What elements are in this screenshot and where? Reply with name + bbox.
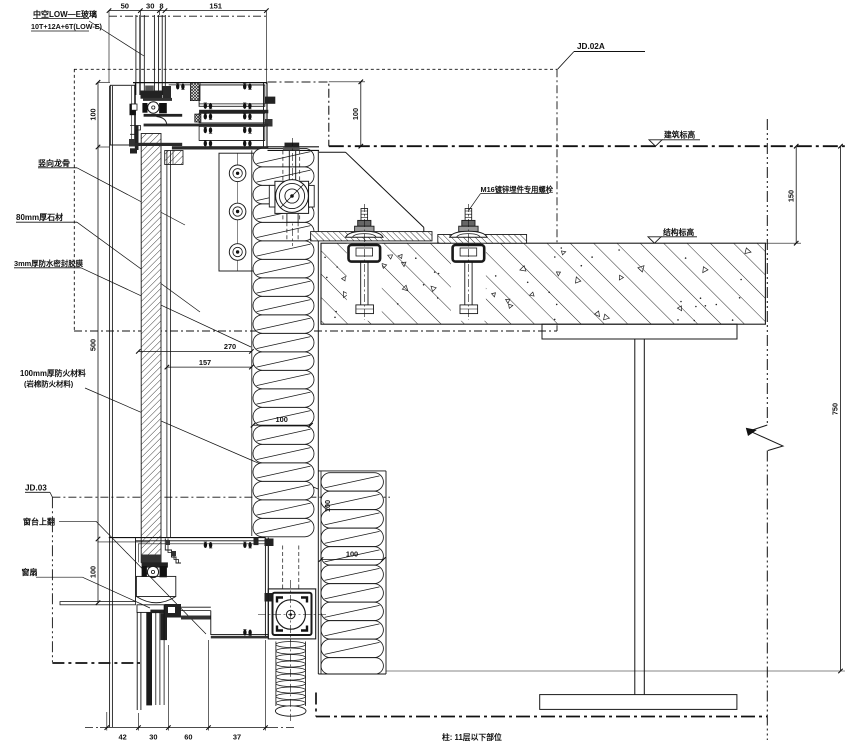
svg-text:500: 500	[89, 339, 98, 351]
svg-text:100: 100	[346, 550, 358, 559]
svg-text:JD.03: JD.03	[25, 483, 47, 492]
svg-text:竖向龙骨: 竖向龙骨	[38, 158, 70, 168]
svg-text:80mm厚石材: 80mm厚石材	[16, 212, 63, 222]
svg-text:30: 30	[149, 733, 157, 742]
svg-text:建筑标高: 建筑标高	[663, 130, 695, 140]
svg-text:50: 50	[121, 2, 129, 11]
svg-text:(岩棉防火材料): (岩棉防火材料)	[24, 379, 74, 388]
svg-text:100: 100	[276, 415, 288, 424]
svg-text:8: 8	[159, 2, 163, 11]
svg-text:100: 100	[351, 108, 360, 120]
svg-text:M16镀锌埋件专用螺栓: M16镀锌埋件专用螺栓	[481, 185, 554, 194]
svg-text:中空LOW—E玻璃: 中空LOW—E玻璃	[33, 9, 97, 19]
svg-text:100: 100	[323, 500, 332, 512]
svg-text:100mm厚防火材料: 100mm厚防火材料	[20, 368, 86, 378]
svg-text:60: 60	[184, 733, 192, 742]
svg-text:柱: 11层以下部位: 柱: 11层以下部位	[442, 732, 502, 742]
svg-text:结构标高: 结构标高	[662, 227, 694, 237]
svg-text:157: 157	[199, 358, 211, 367]
svg-text:100: 100	[89, 566, 98, 578]
svg-text:37: 37	[233, 733, 241, 742]
svg-text:100: 100	[89, 108, 98, 120]
svg-text:窗扇: 窗扇	[22, 567, 38, 577]
svg-text:30: 30	[146, 2, 154, 11]
svg-text:750: 750	[831, 403, 840, 415]
svg-text:270: 270	[224, 342, 236, 351]
svg-text:150: 150	[786, 190, 795, 202]
svg-text:3mm厚防水密封胶膜: 3mm厚防水密封胶膜	[14, 259, 84, 268]
svg-text:151: 151	[209, 2, 222, 11]
svg-text:42: 42	[118, 733, 126, 742]
svg-text:窗台上翻: 窗台上翻	[23, 517, 55, 527]
svg-text:10T+12A+6T(LOW-E): 10T+12A+6T(LOW-E)	[31, 22, 103, 31]
svg-text:JD.02A: JD.02A	[577, 42, 605, 51]
